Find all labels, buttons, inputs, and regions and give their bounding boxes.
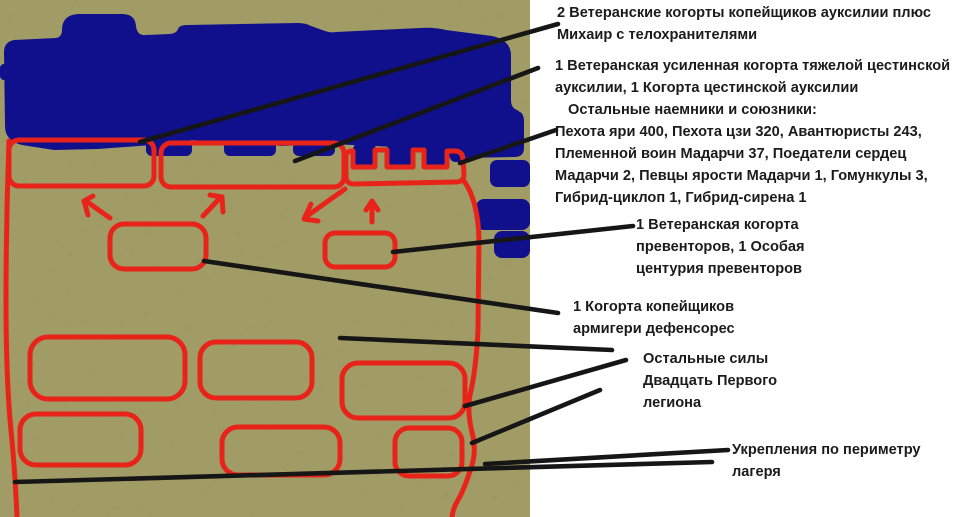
callout-line-legion-b <box>465 360 626 406</box>
callout-text-line: превенторов, 1 Особая <box>636 236 805 258</box>
callout-text-line: лагеря <box>732 461 921 483</box>
annotated-battle-plan: 2 Ветеранские когорты копейщиков ауксили… <box>0 0 960 517</box>
callout-cestine-auxilia: 1 Ветеранская усиленная когорта тяжелой … <box>555 55 950 99</box>
callout-text-line: Гибрид-циклоп 1, Гибрид-сирена 1 <box>555 187 928 209</box>
callout-text-line: центурия превенторов <box>636 258 805 280</box>
callout-text-line: 1 Ветеранская усиленная когорта тяжелой … <box>555 55 950 77</box>
callout-text-line: ауксилии, 1 Когорта цестинской ауксилии <box>555 77 950 99</box>
callout-text-line: Михаир с телохранителями <box>557 24 931 46</box>
callout-text-line: Племенной воин Мадарчи 37, Поедатели сер… <box>555 143 928 165</box>
callout-text-line: 1 Ветеранская когорта <box>636 214 805 236</box>
callout-text-line: Остальные силы <box>643 348 777 370</box>
callout-veteran-spearmen: 2 Ветеранские когорты копейщиков ауксили… <box>557 2 931 46</box>
callout-line-mercenaries <box>460 130 556 163</box>
callout-line-fortifications-long <box>15 462 712 482</box>
callout-armigeri-defensores: 1 Когорта копейщиков армигери дефенсорес <box>573 296 735 340</box>
callout-line-preventors <box>393 226 633 252</box>
callout-text-line: Пехота яри 400, Пехота цзи 320, Авантюри… <box>555 121 928 143</box>
callout-text-line: Двадцать Первого <box>643 370 777 392</box>
callout-line-armigeri <box>204 261 558 313</box>
callout-text-line: армигери дефенсорес <box>573 318 735 340</box>
callout-preventors: 1 Ветеранская когорта превенторов, 1 Осо… <box>636 214 805 280</box>
callout-line-legion-a <box>340 338 612 350</box>
callout-text-line: 1 Когорта копейщиков <box>573 296 735 318</box>
callout-legion-forces: Остальные силы Двадцать Первого легиона <box>643 348 777 414</box>
callout-text-line: Мадарчи 2, Певцы ярости Мадарчи 1, Гомун… <box>555 165 928 187</box>
callout-mercenaries-allies: Остальные наемники и союзники: Пехота яр… <box>555 99 928 209</box>
callout-text-line: Укрепления по периметру <box>732 439 921 461</box>
callout-text-line: 2 Ветеранские когорты копейщиков ауксили… <box>557 2 931 24</box>
callout-text-line: Остальные наемники и союзники: <box>555 99 928 121</box>
callout-fortifications: Укрепления по периметру лагеря <box>732 439 921 483</box>
callout-text-line: легиона <box>643 392 777 414</box>
